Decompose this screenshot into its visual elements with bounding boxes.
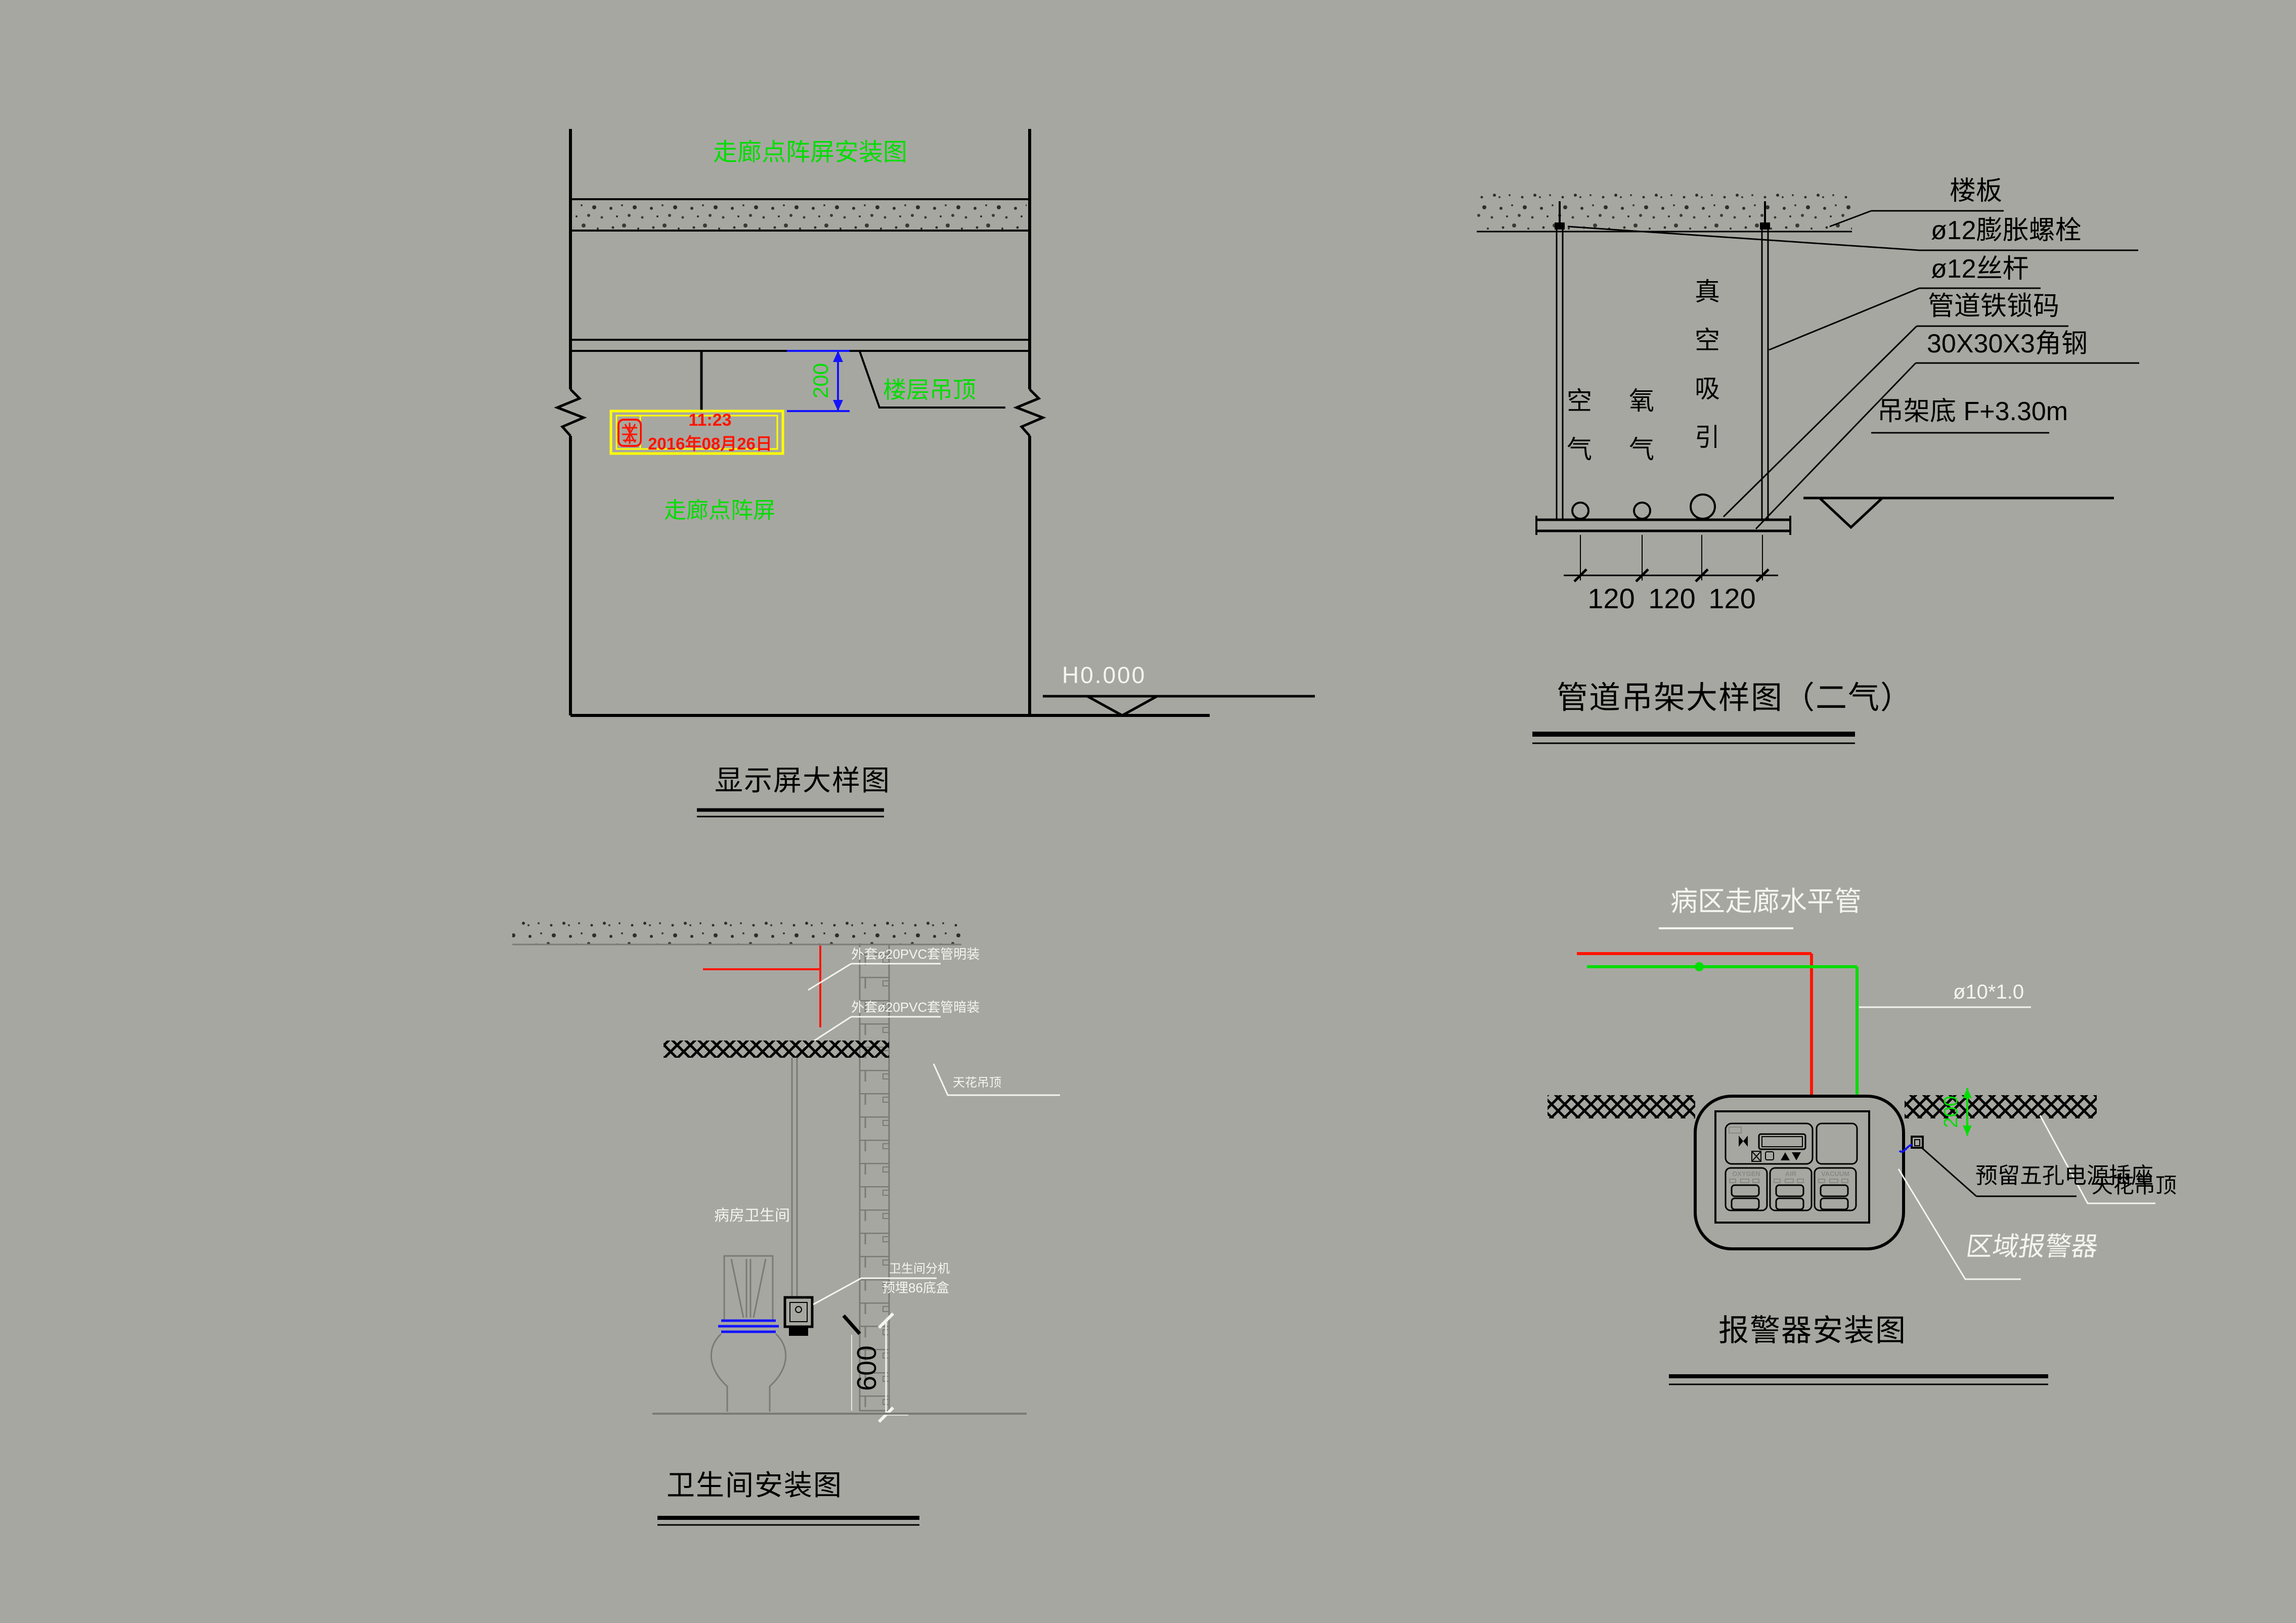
wall-break-icon	[1017, 389, 1043, 436]
cad-sheet: 走廊点阵屏安装图 楼层吊顶 200 11:23 2016年08月26日 走廊点阵…	[0, 0, 2296, 1623]
zone-alarm-label: 区域报警器	[1964, 1234, 2099, 1260]
valve-tick-icon	[844, 1316, 860, 1334]
dimension-200-drop-text: 200	[1941, 1096, 1961, 1128]
pvc-concealed-label: 外套ø20PVC套管暗装	[851, 1001, 980, 1014]
vacuum-pipe-icon	[1691, 494, 1715, 519]
panel-oxygen-text: OXYGEN	[1732, 1170, 1760, 1177]
ceiling-band	[1548, 1095, 1695, 1118]
alarm-detail-caption: 报警器安装图	[1718, 1316, 1907, 1346]
toilet-outline	[711, 1256, 785, 1412]
screen-name-label: 走廊点阵屏	[664, 500, 775, 522]
oxygen-label: 氧气	[1627, 387, 1652, 484]
room-label: 病房卫生间	[714, 1208, 790, 1224]
dimension-200-text: 200	[810, 363, 831, 398]
display-detail-linework	[557, 129, 1315, 817]
panel-vacuum-text: VACUUM	[1821, 1170, 1849, 1177]
display-detail-caption: 显示屏大样图	[715, 767, 891, 795]
floor-level-text: H0.000	[1062, 663, 1146, 687]
down-arrow-icon	[1792, 1152, 1801, 1160]
datum-mark-icon	[1820, 498, 1882, 527]
dim-120-text: 120	[1648, 584, 1695, 613]
vacuum-label: 真空吸引	[1693, 278, 1718, 472]
angle-steel-label: 30X30X3角钢	[1927, 331, 2088, 357]
ceiling-label: 天花吊顶	[2092, 1175, 2177, 1196]
alarm-panel	[1695, 1096, 1904, 1249]
dim-120-text: 120	[1708, 584, 1755, 613]
air-pipe-icon	[1572, 503, 1588, 519]
threaded-rod-label: ø12丝杆	[1931, 256, 2029, 282]
speaker-icon	[1739, 1136, 1743, 1147]
hanger-detail-caption: 管道吊架大样图（二气）	[1557, 683, 1913, 714]
concrete-slab	[512, 917, 961, 944]
dimension-600-text: 600	[853, 1345, 880, 1391]
socket-wire	[1900, 1145, 1912, 1152]
toilet-detail-caption: 卫生间安装图	[667, 1471, 843, 1500]
suspended-ceiling-band	[664, 1041, 889, 1058]
oxygen-pipe-icon	[1634, 503, 1650, 519]
screen-time: 11:23	[688, 411, 731, 430]
panel-air-text: AIR	[1785, 1170, 1796, 1177]
wall-break-icon	[557, 389, 584, 436]
anchor-bolt-icon	[1555, 222, 1565, 230]
corridor-screen-title: 走廊点阵屏安装图	[713, 141, 907, 165]
slab-label: 楼板	[1950, 178, 2002, 204]
concrete-slab	[573, 200, 1027, 230]
anchor-bolt-icon	[1760, 222, 1770, 230]
pipe-spec-label: ø10*1.0	[1953, 982, 2024, 1002]
handset-label-line1: 卫生间分机	[889, 1263, 950, 1275]
up-arrow-icon	[1781, 1152, 1790, 1160]
expansion-bolt-label: ø12膨胀螺栓	[1931, 217, 2082, 244]
dim-120-text: 120	[1587, 584, 1635, 613]
handset-device	[785, 1297, 812, 1336]
screen-logo-icon	[619, 420, 641, 446]
corridor-pipe-label: 病区走廊水平管	[1670, 888, 1862, 915]
ceiling-label: 天花吊顶	[953, 1077, 1001, 1089]
pipe-clamp-label: 管道铁锁码	[1928, 293, 2059, 320]
pvc-surface-label: 外套ø20PVC套管明装	[851, 948, 980, 961]
floor-ceiling-label: 楼层吊顶	[883, 378, 976, 401]
ceiling-band	[1905, 1095, 2097, 1118]
handset-label-line2: 预埋86底盒	[882, 1281, 949, 1294]
concrete-slab	[1477, 191, 1852, 231]
toilet-seat-stripes	[718, 1321, 779, 1332]
hanger-bottom-datum-label: 吊架底 F+3.30m	[1877, 398, 2068, 425]
screen-date: 2016年08月26日	[648, 430, 772, 455]
air-label: 空气	[1565, 387, 1590, 484]
level-mark-icon	[1087, 696, 1157, 715]
screen-display: 11:23 2016年08月26日	[642, 414, 778, 451]
